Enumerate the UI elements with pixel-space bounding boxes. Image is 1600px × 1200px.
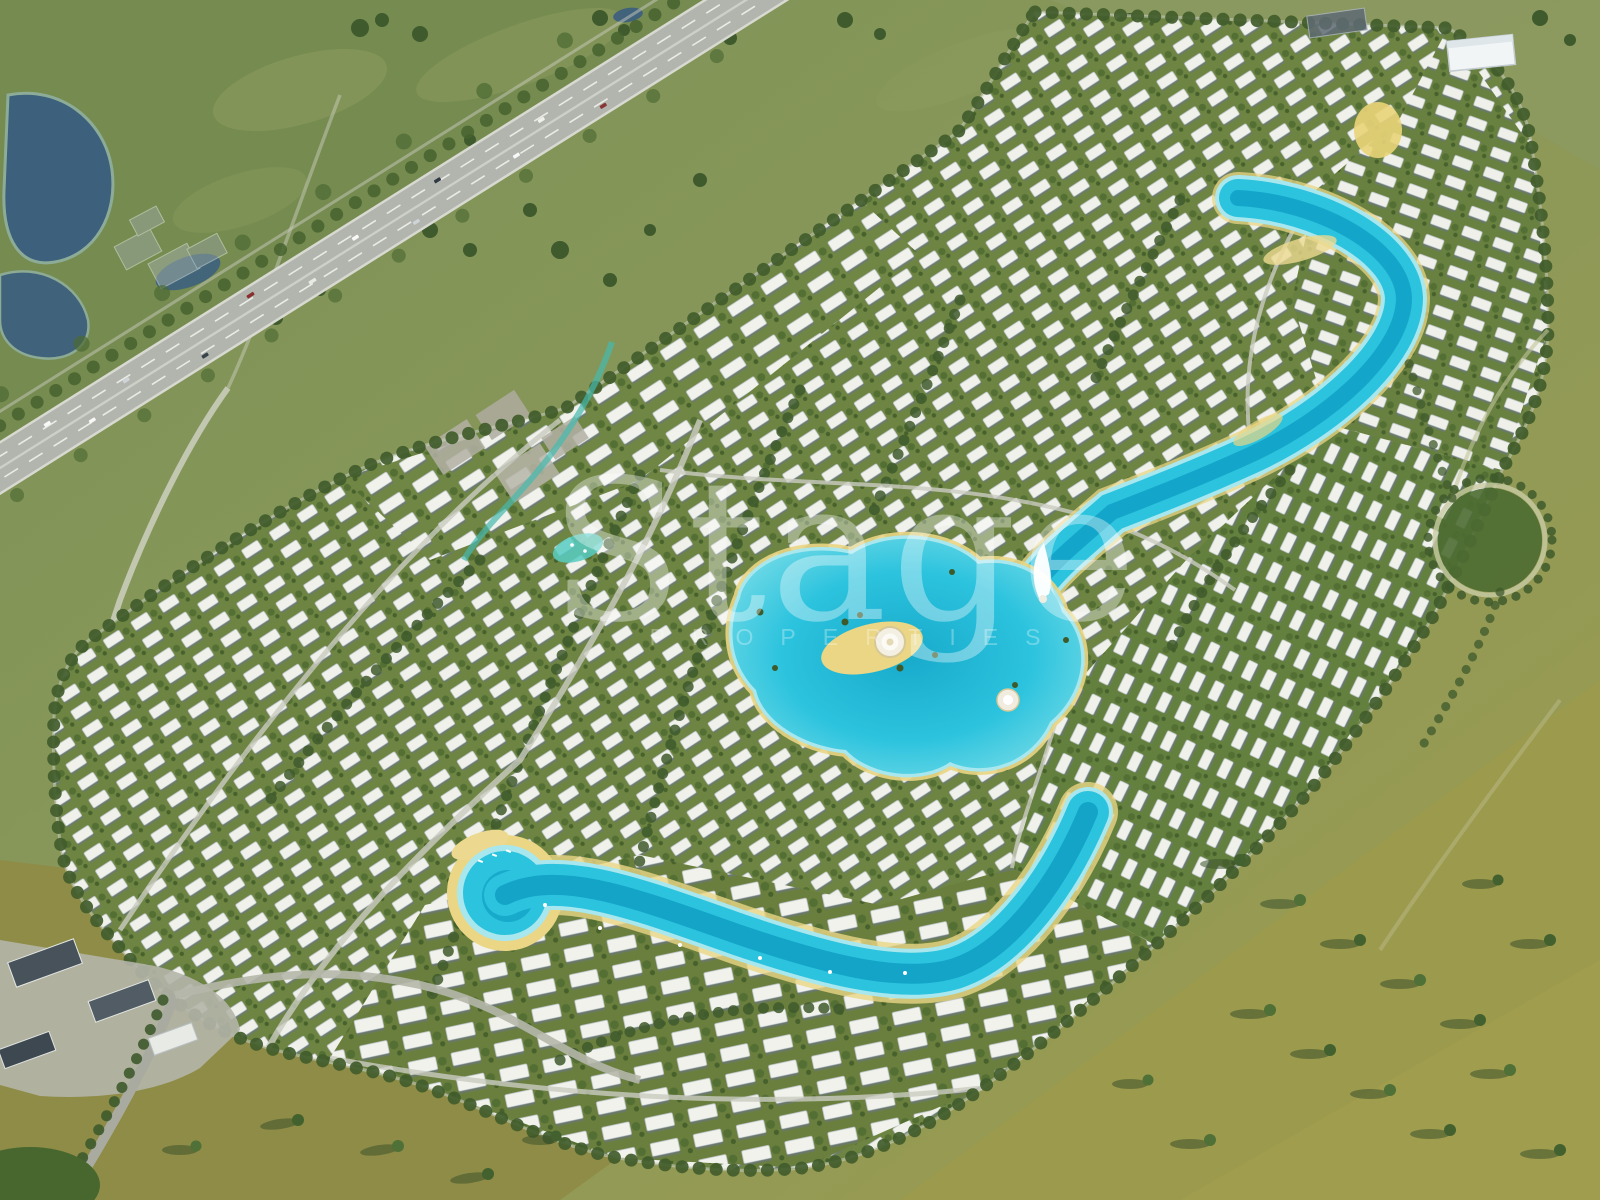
- roundabout-grove: [1438, 488, 1542, 592]
- warehouse: [1447, 35, 1516, 72]
- aerial-render: Stage PROPERTIES: [0, 0, 1600, 1200]
- scene-canvas: [0, 0, 1600, 1200]
- sand-patch: [1354, 102, 1402, 158]
